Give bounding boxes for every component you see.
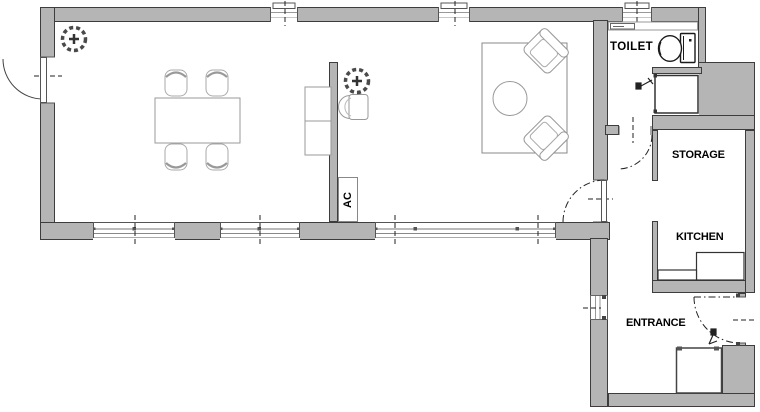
room-label-ac: AC bbox=[342, 192, 354, 208]
basin-icon bbox=[636, 74, 698, 113]
ac-unit: AC bbox=[338, 177, 358, 222]
door-swing-arc bbox=[618, 135, 652, 169]
tub-chair bbox=[339, 95, 369, 120]
room-label-kitchen: KITCHEN bbox=[676, 231, 724, 243]
door-swing-arc bbox=[3, 59, 43, 99]
armchair bbox=[522, 27, 570, 75]
door-swing-arc bbox=[563, 180, 605, 222]
room-label-toilet: TOILET bbox=[610, 41, 653, 53]
door-leaf bbox=[602, 181, 607, 222]
tap-icon bbox=[636, 78, 653, 89]
armchair bbox=[522, 114, 570, 162]
floor-plan: TOILET STORAGE KITCHEN ENTRANCE AC bbox=[0, 0, 760, 412]
living-room-door bbox=[563, 180, 607, 222]
shower-icon bbox=[677, 329, 722, 393]
top-window-frames bbox=[270, 3, 652, 22]
dining-table bbox=[155, 98, 240, 143]
living-room-set bbox=[482, 27, 570, 162]
door-leaf bbox=[41, 58, 47, 103]
coffee-table bbox=[493, 82, 527, 116]
plan-drawing-layer bbox=[0, 0, 760, 412]
sideboard bbox=[305, 87, 331, 155]
ceiling-light-icon bbox=[63, 28, 86, 51]
room-label-storage: STORAGE bbox=[672, 149, 725, 161]
bottom-window-frames bbox=[93, 222, 556, 238]
front-door bbox=[3, 58, 47, 103]
opening-jamb-lines bbox=[40, 57, 746, 343]
toilet-door bbox=[618, 135, 652, 169]
ceiling-light-icon bbox=[346, 70, 369, 93]
dining-chair bbox=[206, 70, 228, 96]
dining-set bbox=[155, 70, 240, 170]
dining-chair bbox=[165, 144, 187, 170]
kitchen-counter bbox=[658, 253, 744, 281]
room-label-entrance: ENTRANCE bbox=[626, 317, 686, 329]
wall-shelf bbox=[609, 22, 698, 30]
dining-chair bbox=[206, 144, 228, 170]
toilet-icon bbox=[659, 34, 696, 63]
dining-chair bbox=[165, 70, 187, 96]
